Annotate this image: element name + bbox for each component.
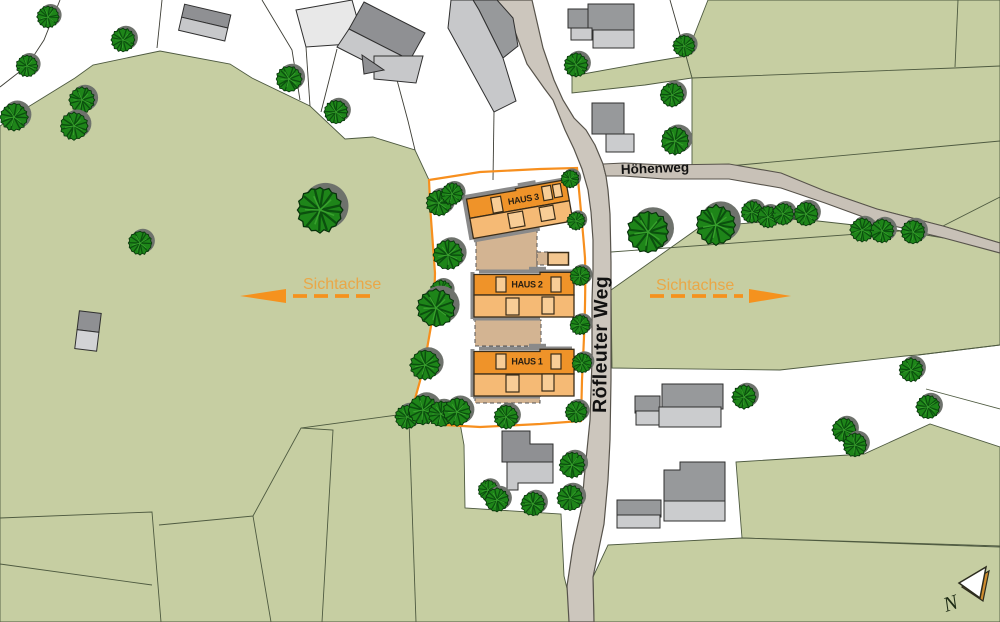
svg-text:Sichtachse: Sichtachse bbox=[303, 276, 381, 293]
svg-text:Sichtachse: Sichtachse bbox=[656, 277, 734, 294]
svg-text:Höhenweg: Höhenweg bbox=[621, 160, 690, 177]
svg-text:Röfleuter Weg: Röfleuter Weg bbox=[589, 276, 613, 413]
svg-text:HAUS 2: HAUS 2 bbox=[511, 280, 543, 290]
svg-text:HAUS 1: HAUS 1 bbox=[511, 357, 543, 367]
